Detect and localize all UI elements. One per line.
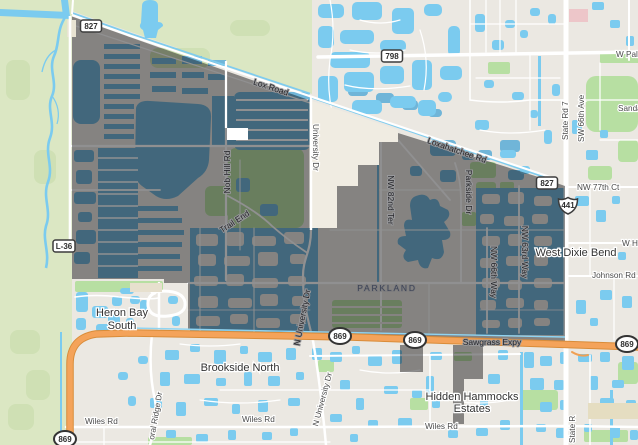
svg-text:Nob Hill Rd: Nob Hill Rd	[222, 150, 232, 193]
svg-text:West Dixie Bend: West Dixie Bend	[535, 247, 616, 259]
svg-text:869: 869	[620, 340, 634, 349]
svg-text:SW 66th Ave: SW 66th Ave	[577, 94, 586, 142]
svg-text:NW 63rd Way: NW 63rd Way	[520, 226, 530, 279]
svg-text:Brookside North: Brookside North	[201, 362, 280, 374]
svg-text:State Rd 7: State Rd 7	[561, 101, 570, 140]
svg-text:Hidden Hammocks: Hidden Hammocks	[426, 391, 519, 403]
svg-text:Sandal: Sandal	[618, 104, 638, 113]
svg-text:L-36: L-36	[56, 242, 73, 251]
svg-text:Wiles Rd: Wiles Rd	[242, 415, 275, 424]
svg-text:Wiles Rd: Wiles Rd	[85, 417, 118, 426]
svg-text:NW 66th Way: NW 66th Way	[489, 246, 499, 299]
svg-text:Johnson Rd: Johnson Rd	[592, 271, 636, 280]
svg-text:NW 82nd Ter: NW 82nd Ter	[386, 175, 396, 225]
svg-text:827: 827	[540, 179, 554, 188]
svg-text:Wiles Rd: Wiles Rd	[425, 422, 458, 431]
svg-text:827: 827	[84, 22, 98, 31]
svg-text:869: 869	[408, 336, 422, 345]
svg-text:441: 441	[561, 201, 575, 210]
svg-text:W Palm: W Palm	[616, 50, 638, 59]
svg-text:W H: W H	[622, 239, 638, 248]
svg-text:Estates: Estates	[454, 403, 491, 415]
svg-text:PARKLAND: PARKLAND	[357, 283, 417, 293]
svg-text:869: 869	[58, 435, 72, 444]
svg-text:798: 798	[385, 52, 399, 61]
svg-text:Parkside Dr: Parkside Dr	[464, 170, 474, 215]
svg-text:University Dr: University Dr	[311, 124, 320, 171]
svg-text:South: South	[108, 320, 137, 332]
svg-text:869: 869	[333, 332, 347, 341]
svg-text:NW 77th Ct: NW 77th Ct	[577, 183, 620, 192]
svg-text:Heron Bay: Heron Bay	[96, 307, 148, 319]
svg-text:State R: State R	[568, 416, 577, 443]
svg-text:Sawgrass Expy: Sawgrass Expy	[463, 337, 522, 347]
